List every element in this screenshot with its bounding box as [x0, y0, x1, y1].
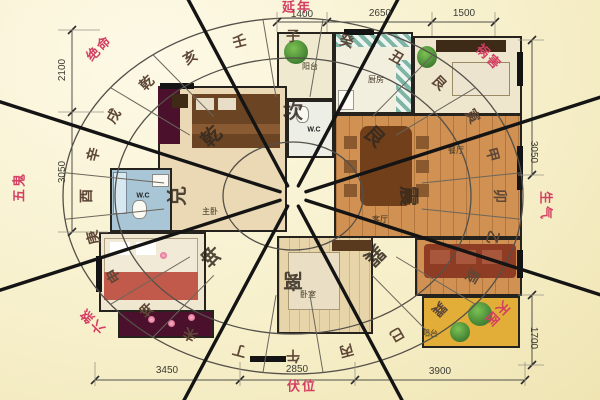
window-bar: [344, 29, 374, 35]
chair: [344, 136, 357, 149]
sofa-cushion: [430, 250, 450, 264]
room-label-dining: 餐厅: [448, 147, 464, 155]
pillow: [110, 242, 130, 255]
feng-shui-floorplan: 阳台 厨房 W.C W.C 主卧 餐厅 客厅 卧室 阳台 子癸丑艮寅甲卯乙辰巽巳…: [0, 0, 600, 400]
pillow: [136, 242, 156, 255]
chair: [416, 136, 429, 149]
wardrobe: [436, 40, 506, 52]
room-balcony-maroon: [118, 310, 214, 338]
room-label-bedroom2: 卧室: [300, 291, 316, 299]
mountain-char: 丁: [231, 340, 248, 357]
window-bar: [96, 256, 102, 292]
mountain-char: 乾: [138, 74, 158, 94]
mountain-char: 辛: [86, 147, 103, 164]
dim-right-1700: 1700: [528, 327, 538, 349]
chair: [344, 160, 357, 173]
wardrobe: [332, 240, 372, 251]
dim-bottom-3900: 3900: [429, 367, 451, 377]
mountain-char: 戌: [106, 107, 125, 126]
dim-right-3050: 3050: [528, 141, 538, 163]
kitchen-counter: [336, 34, 411, 47]
chair: [416, 160, 429, 173]
room-label-kitchen: 厨房: [368, 76, 384, 84]
sofa-cushion: [482, 250, 502, 264]
room-label-living: 客厅: [372, 216, 388, 224]
window-bar: [517, 250, 523, 278]
sink: [152, 174, 169, 187]
mansion-label-left: 五鬼: [13, 172, 26, 202]
mansion-label-top-left: 绝命: [84, 33, 114, 63]
mountain-char: 巳: [386, 323, 405, 342]
dim-top-1500: 1500: [453, 9, 475, 19]
mansion-label-top: 延年: [282, 1, 312, 14]
room-label-wc-left: W.C: [136, 193, 149, 200]
dim-bottom-2850: 2850: [286, 365, 308, 375]
chair: [416, 184, 429, 197]
mansion-label-right: 生气: [540, 191, 553, 221]
room-label-wc-top: W.C: [307, 127, 320, 134]
bed-bedroom2: [288, 252, 340, 310]
mountain-char: 壬: [231, 35, 248, 52]
blanket: [104, 272, 198, 300]
bathtub: [113, 172, 127, 214]
plant: [284, 40, 308, 64]
dim-top-2650: 2650: [369, 9, 391, 19]
toilet: [132, 200, 147, 219]
room-label-balcony-top: 阳台: [302, 63, 318, 71]
fridge: [338, 90, 354, 110]
dim-bottom-3450: 3450: [156, 366, 178, 376]
sofa-cushion: [456, 250, 476, 264]
kitchen-counter: [396, 60, 411, 112]
mountain-char: 酉: [81, 189, 95, 203]
bed-study: [452, 62, 510, 96]
window-bar: [517, 146, 523, 190]
flower: [188, 314, 195, 321]
room-label-master: 主卧: [202, 208, 218, 216]
blanket: [192, 124, 280, 134]
mansion-label-bottom: 伏位: [287, 380, 317, 393]
pillow: [196, 98, 214, 110]
chair: [344, 184, 357, 197]
window-bar: [160, 83, 194, 89]
toilet: [296, 106, 309, 123]
flower: [148, 316, 155, 323]
mountain-char: 午: [286, 347, 300, 361]
window-bar: [250, 356, 286, 362]
dim-left-2100: 2100: [58, 59, 68, 81]
plant: [450, 322, 470, 342]
nightstand: [172, 94, 188, 108]
pillow: [218, 98, 236, 110]
mountain-char: 亥: [181, 50, 200, 69]
flower: [168, 320, 175, 327]
room-label-balcony-bottom: 阳台: [422, 330, 438, 338]
flower: [160, 252, 167, 259]
plant: [417, 46, 437, 68]
dim-left-3050: 3050: [58, 161, 68, 183]
mountain-char: 丙: [337, 340, 354, 357]
window-bar: [517, 52, 523, 86]
dining-table: [360, 126, 412, 206]
